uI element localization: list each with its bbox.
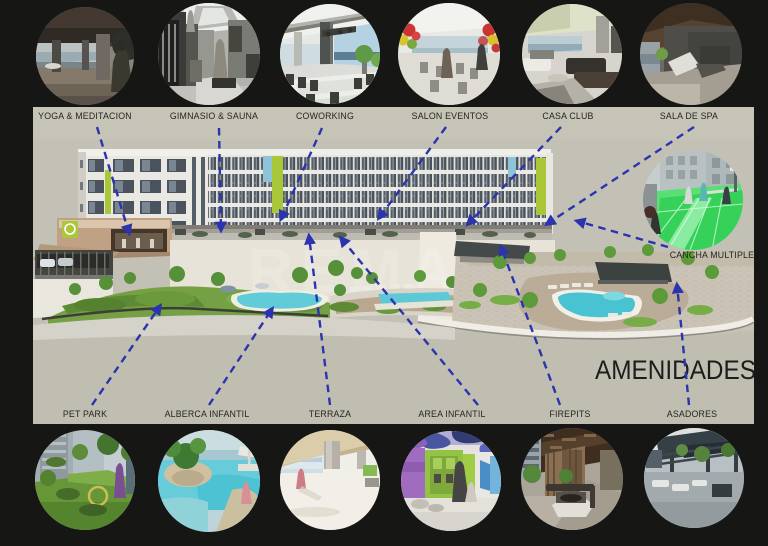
- svg-text:AREA INFANTIL: AREA INFANTIL: [418, 409, 485, 419]
- svg-text:ALBERCA INFANTIL: ALBERCA INFANTIL: [165, 409, 250, 419]
- svg-text:CANCHA MULTIPLE: CANCHA MULTIPLE: [670, 250, 754, 260]
- svg-text:PET PARK: PET PARK: [63, 409, 107, 419]
- svg-text:YOGA & MEDITACION: YOGA & MEDITACION: [38, 111, 132, 121]
- svg-text:SALON EVENTOS: SALON EVENTOS: [412, 111, 489, 121]
- svg-text:FIREPITS: FIREPITS: [549, 409, 590, 419]
- svg-text:SALA DE SPA: SALA DE SPA: [660, 111, 718, 121]
- svg-text:ASADORES: ASADORES: [667, 409, 718, 419]
- svg-text:TERRAZA: TERRAZA: [309, 409, 351, 419]
- svg-text:AMENIDADES: AMENIDADES: [595, 355, 756, 385]
- svg-text:COWORKING: COWORKING: [296, 111, 354, 121]
- svg-text:GIMNASIO & SAUNA: GIMNASIO & SAUNA: [170, 111, 258, 121]
- svg-text:CASA CLUB: CASA CLUB: [542, 111, 593, 121]
